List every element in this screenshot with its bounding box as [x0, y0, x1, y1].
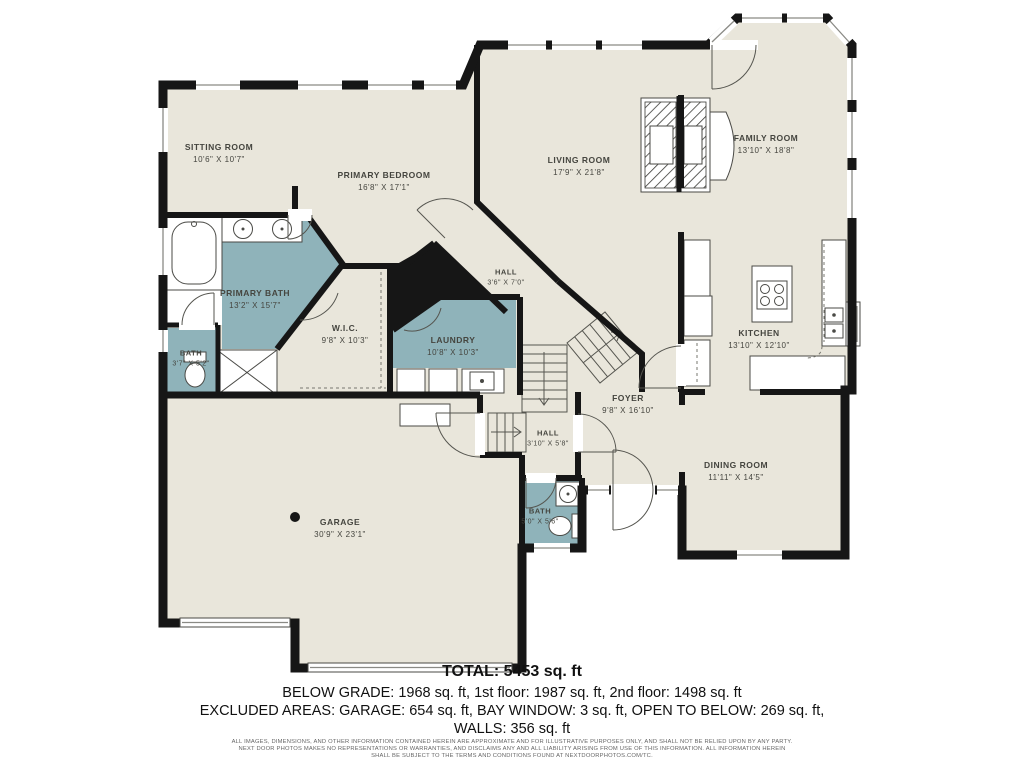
room-label-sitting-room: SITTING ROOM10'6" X 10'7": [185, 142, 253, 164]
garage-step: [400, 404, 450, 426]
room-label-living-room: LIVING ROOM17'9" X 21'8": [548, 155, 611, 177]
floorplan-svg: [0, 0, 1024, 768]
tub-surround: [166, 217, 222, 290]
walls-area-text: WALLS: 356 sq. ft: [0, 720, 1024, 738]
kitchen-island: [752, 266, 792, 322]
room-label-hall-lower: HALL3'10" X 5'8": [527, 429, 569, 448]
room-label-primary-bedroom: PRIMARY BEDROOM16'8" X 17'1": [338, 170, 431, 192]
room-label-garage: GARAGE30'9" X 23'1": [314, 517, 366, 539]
area-summary: TOTAL: 5453 sq. ft BELOW GRADE: 1968 sq.…: [0, 663, 1024, 738]
disclaimer: ALL IMAGES, DIMENSIONS, AND OTHER INFORM…: [0, 739, 1024, 760]
shower-icon: [217, 350, 277, 395]
room-label-kitchen: KITCHEN13'10" X 12'10": [728, 328, 790, 350]
room-label-bath-hall: BATH5'0" X 5'6": [521, 507, 558, 526]
room-label-hall-upper: HALL3'6" X 7'0": [487, 268, 524, 287]
room-label-bath-left: BATH3'7" X 5'2": [172, 349, 209, 368]
room-label-dining-room: DINING ROOM11'11" X 14'5": [704, 460, 768, 482]
washer-dryer-icons: [397, 369, 504, 393]
total-area-text: TOTAL: 5453 sq. ft: [0, 663, 1024, 681]
room-label-wic: W.I.C.9'8" X 10'3": [322, 323, 369, 345]
room-label-primary-bath: PRIMARY BATH13'2" X 15'7": [220, 288, 290, 310]
room-label-family-room: FAMILY ROOM13'10" X 18'8": [734, 133, 799, 155]
room-label-laundry: LAUNDRY10'8" X 10'3": [427, 335, 479, 357]
fridge-icon: [684, 296, 712, 336]
disclaimer-line: NEXT DOOR PHOTOS MAKES NO REPRESENTATION…: [0, 746, 1024, 753]
disclaimer-line: ALL IMAGES, DIMENSIONS, AND OTHER INFORM…: [0, 739, 1024, 746]
disclaimer-line: SHALL BE SUBJECT TO THE TERMS AND CONDIT…: [0, 753, 1024, 760]
excluded-areas-text: EXCLUDED AREAS: GARAGE: 654 sq. ft, BAY …: [0, 702, 1024, 720]
floor-areas-text: BELOW GRADE: 1968 sq. ft, 1st floor: 198…: [0, 684, 1024, 702]
floorplan-canvas: SITTING ROOM10'6" X 10'7" PRIMARY BEDROO…: [0, 0, 1024, 768]
garage-post: [290, 512, 300, 522]
room-label-foyer: FOYER9'8" X 16'10": [602, 393, 654, 415]
